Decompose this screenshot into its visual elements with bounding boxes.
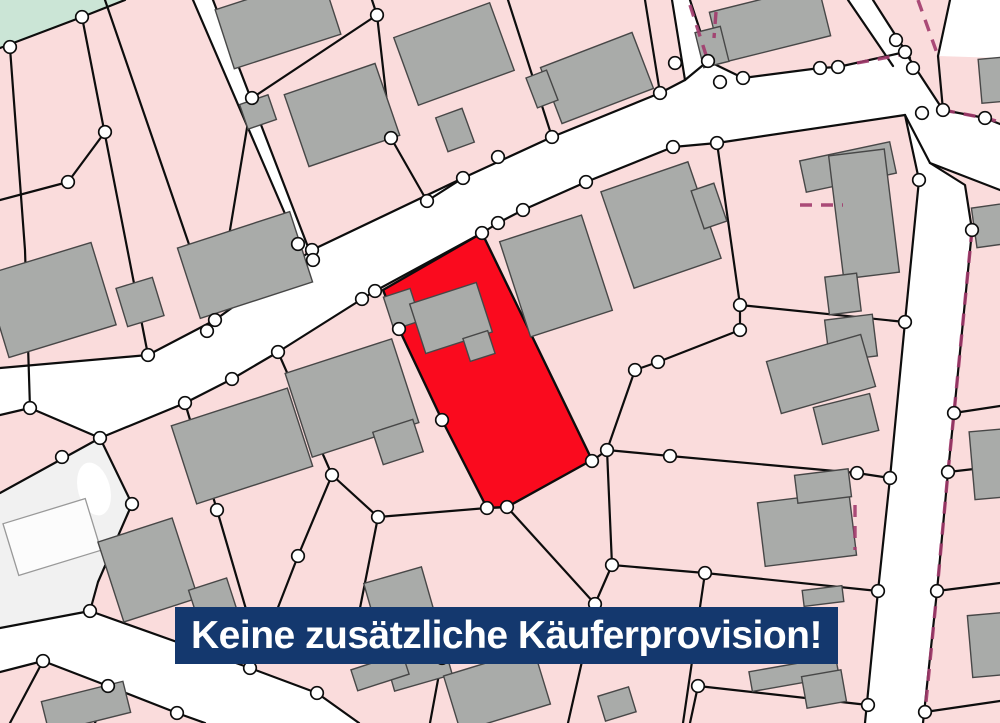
survey-point <box>669 57 682 70</box>
cadastral-map-view: Keine zusätzliche Käuferprovision! <box>0 0 1000 723</box>
survey-point <box>654 87 667 100</box>
survey-point <box>372 511 385 524</box>
survey-point <box>546 131 559 144</box>
survey-point <box>652 356 665 369</box>
survey-point <box>501 501 514 514</box>
survey-point <box>211 504 224 517</box>
survey-point <box>436 414 449 427</box>
survey-point <box>899 46 912 59</box>
survey-point <box>890 34 903 47</box>
survey-point <box>481 502 494 515</box>
survey-point <box>62 176 75 189</box>
survey-point <box>56 451 69 464</box>
survey-point <box>737 72 750 85</box>
survey-point <box>606 559 619 572</box>
survey-point <box>517 204 530 217</box>
survey-point <box>734 299 747 312</box>
survey-point <box>492 151 505 164</box>
survey-point <box>931 585 944 598</box>
survey-point <box>311 687 324 700</box>
survey-point <box>421 195 434 208</box>
survey-point <box>393 323 406 336</box>
survey-point <box>734 324 747 337</box>
building <box>794 469 851 503</box>
survey-point <box>356 293 369 306</box>
survey-point <box>37 655 50 668</box>
survey-point <box>699 567 712 580</box>
survey-point <box>919 706 932 719</box>
survey-point <box>580 176 593 189</box>
survey-point <box>94 432 107 445</box>
survey-point <box>692 680 705 693</box>
survey-point <box>4 41 17 54</box>
survey-point <box>832 61 845 74</box>
survey-point <box>84 605 97 618</box>
survey-point <box>226 373 239 386</box>
survey-point <box>664 450 677 463</box>
survey-point <box>76 11 89 24</box>
survey-point <box>326 469 339 482</box>
survey-point <box>102 680 115 693</box>
survey-point <box>884 472 897 485</box>
survey-point <box>24 402 37 415</box>
survey-point <box>714 76 727 89</box>
survey-point <box>99 126 112 139</box>
survey-point <box>851 467 864 480</box>
survey-point <box>142 349 155 362</box>
promo-banner: Keine zusätzliche Käuferprovision! <box>175 607 838 664</box>
survey-point <box>171 707 184 720</box>
survey-point <box>601 444 614 457</box>
survey-point <box>492 217 505 230</box>
promo-banner-text: Keine zusätzliche Käuferprovision! <box>191 614 822 658</box>
building <box>802 670 847 708</box>
survey-point <box>126 498 139 511</box>
survey-point <box>457 172 470 185</box>
survey-point <box>979 112 992 125</box>
survey-point <box>385 132 398 145</box>
survey-point <box>966 224 979 237</box>
survey-point <box>702 55 715 68</box>
building <box>978 57 1000 103</box>
survey-point <box>907 62 920 75</box>
building <box>757 492 856 567</box>
survey-point <box>942 466 955 479</box>
survey-point <box>862 699 875 712</box>
building <box>969 428 1000 499</box>
survey-point <box>948 407 961 420</box>
survey-point <box>209 314 222 327</box>
survey-point <box>292 550 305 563</box>
survey-point <box>272 346 285 359</box>
survey-point <box>913 174 926 187</box>
building <box>967 613 1000 678</box>
survey-point <box>586 455 599 468</box>
survey-point <box>872 585 885 598</box>
survey-point <box>916 107 929 120</box>
building <box>825 273 861 315</box>
survey-point <box>476 227 489 240</box>
survey-point <box>371 9 384 22</box>
survey-point <box>292 238 305 251</box>
survey-point <box>179 397 192 410</box>
survey-point <box>201 325 214 338</box>
survey-point <box>307 254 320 267</box>
survey-point <box>667 141 680 154</box>
survey-point <box>814 62 827 75</box>
survey-point <box>711 137 724 150</box>
survey-point <box>246 92 259 105</box>
survey-point <box>369 285 382 298</box>
survey-point <box>899 316 912 329</box>
survey-point <box>937 104 950 117</box>
survey-point <box>629 364 642 377</box>
